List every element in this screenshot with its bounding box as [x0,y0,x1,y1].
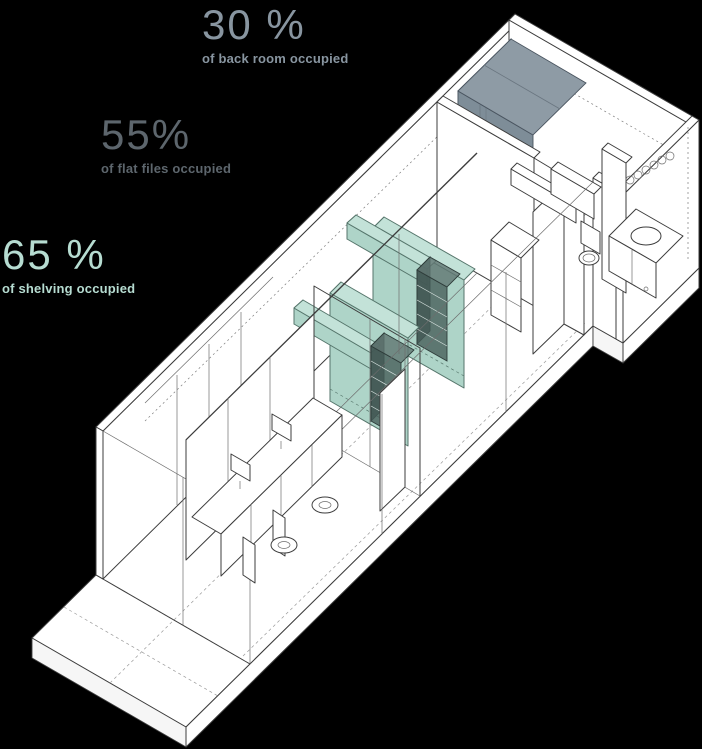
stat-shelving-caption: of shelving occupied [2,282,135,295]
stat-back-room-value: 30 % [202,4,349,46]
stat-shelving-value: 65 % [2,234,135,276]
stat-flat-files-value: 55% [101,114,231,156]
chair [312,497,338,513]
stat-shelving: 65 % of shelving occupied [2,234,135,295]
sink-basin [631,227,661,245]
stat-back-room: 30 % of back room occupied [202,4,349,65]
occupancy-axonometric-figure: 30 % of back room occupied 55% of flat f… [0,0,702,749]
front-door-leaf [380,369,405,511]
open-cabinet-door [243,537,255,583]
stat-flat-files: 55% of flat files occupied [101,114,231,175]
stat-back-room-caption: of back room occupied [202,52,349,65]
stat-flat-files-caption: of flat files occupied [101,162,231,175]
chair [271,537,297,553]
